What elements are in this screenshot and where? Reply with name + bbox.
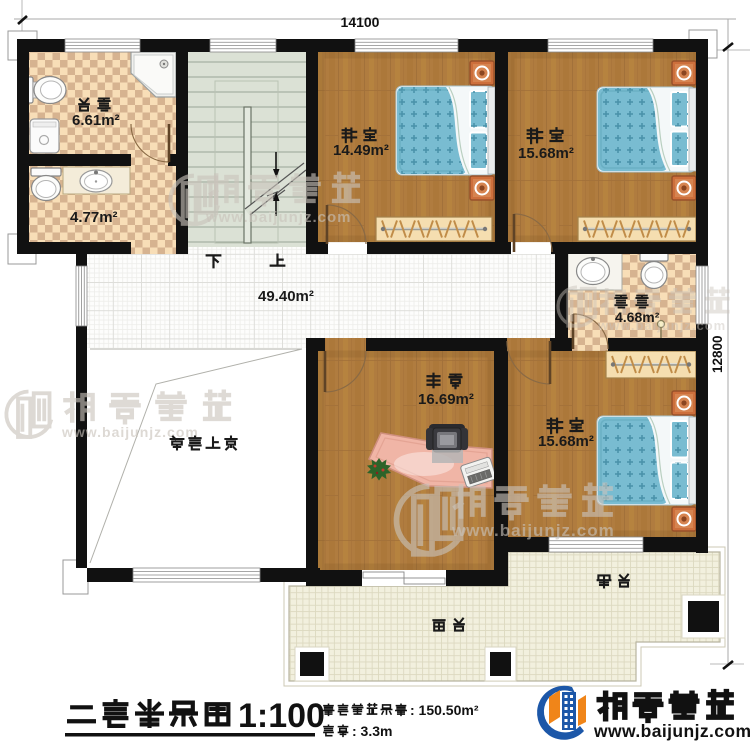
svg-text:16.69m²: 16.69m² [418,391,474,408]
svg-text:15.68m²: 15.68m² [518,145,574,162]
svg-text:14100: 14100 [341,14,380,30]
svg-text:www.baijunjz.com: www.baijunjz.com [205,209,351,226]
svg-text:: 3.3m: : 3.3m [352,723,392,739]
svg-text:: 150.50m²: : 150.50m² [410,702,479,718]
svg-text:12800: 12800 [710,335,725,373]
svg-text:www.baijunjz.com: www.baijunjz.com [593,721,750,741]
svg-text:6.61m²: 6.61m² [72,112,120,129]
svg-text:www.baijunjz.com: www.baijunjz.com [61,424,199,440]
svg-text:14.49m²: 14.49m² [333,142,389,159]
svg-text:www.baijunjz.com: www.baijunjz.com [451,521,615,540]
svg-text:49.40m²: 49.40m² [258,288,314,305]
svg-text:4.68m²: 4.68m² [615,309,660,325]
svg-text:1:100: 1:100 [238,697,325,735]
svg-text:4.77m²: 4.77m² [70,209,118,226]
svg-text:15.68m²: 15.68m² [538,433,594,450]
